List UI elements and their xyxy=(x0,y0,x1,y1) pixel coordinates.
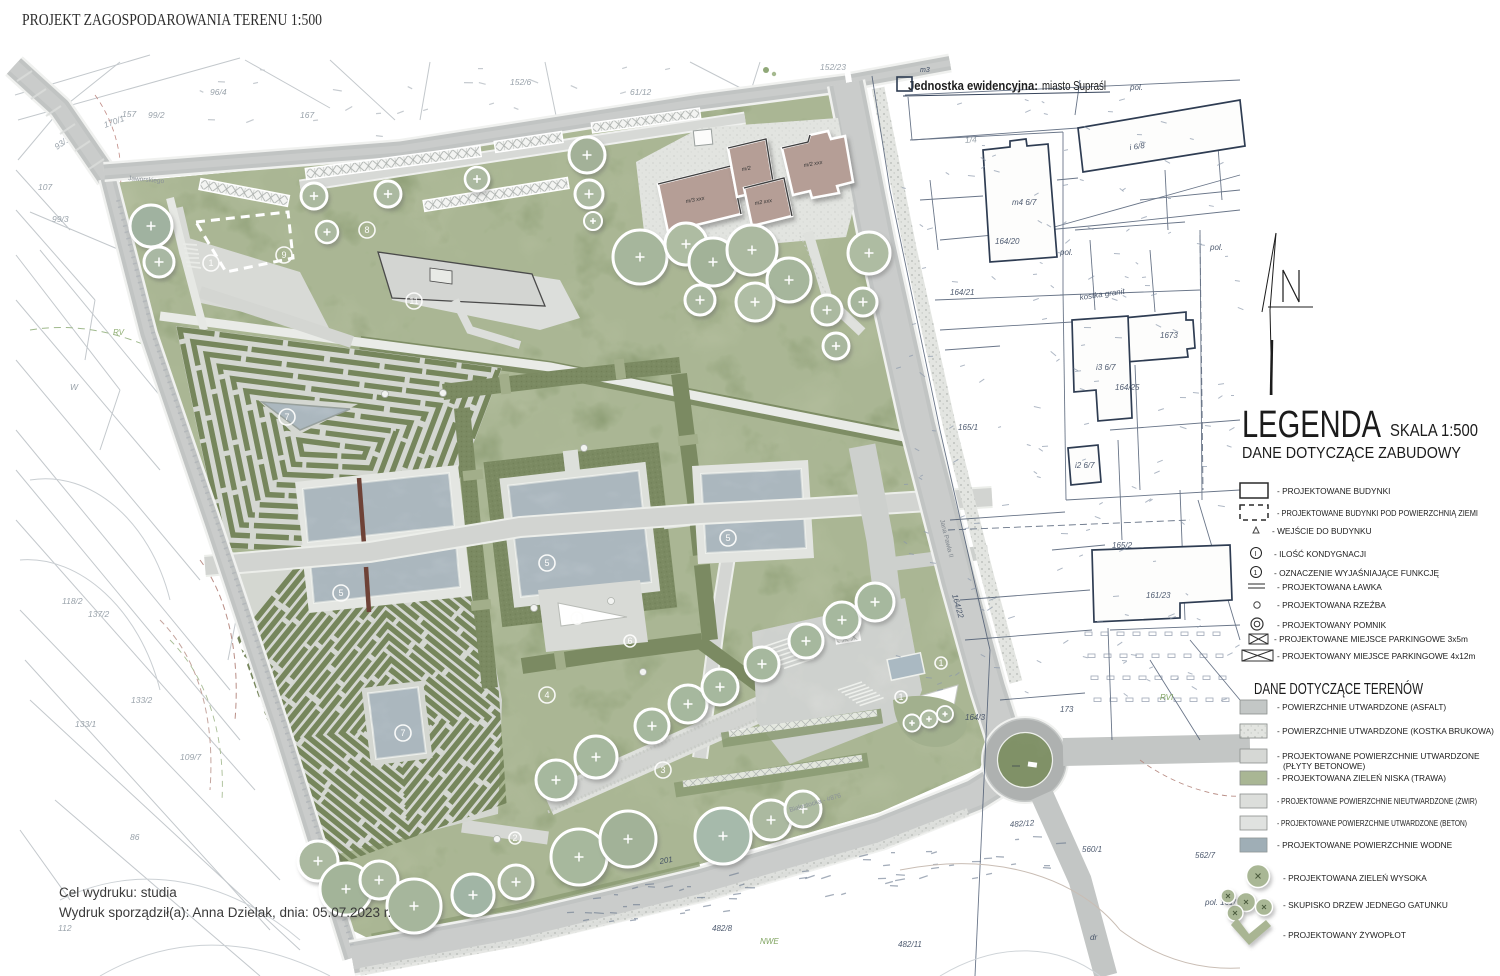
svg-text:86: 86 xyxy=(130,832,140,842)
svg-text:- PROJEKTOWANA ŁAWKA: - PROJEKTOWANA ŁAWKA xyxy=(1277,582,1382,592)
svg-text:- POWIERZCHNIE UTWARDZONE (KOS: - POWIERZCHNIE UTWARDZONE (KOSTKA BRUKOW… xyxy=(1277,726,1494,736)
svg-text:i3 6/7: i3 6/7 xyxy=(1096,363,1116,372)
svg-text:133/1: 133/1 xyxy=(75,719,97,729)
svg-text:- PROJEKTOWANE POWIERZCHNIE UT: - PROJEKTOWANE POWIERZCHNIE UTWARDZONE xyxy=(1277,751,1480,761)
svg-text:DANE DOTYCZĄCE ZABUDOWY: DANE DOTYCZĄCE ZABUDOWY xyxy=(1242,445,1461,462)
svg-text:RV: RV xyxy=(113,328,125,337)
svg-text:- OZNACZENIE WYJAŚNIAJĄCE FUNK: - OZNACZENIE WYJAŚNIAJĄCE FUNKCJĘ xyxy=(1274,567,1439,578)
svg-text:pol.: pol. xyxy=(1129,83,1143,92)
svg-text:- WEJŚCIE DO BUDYNKU: - WEJŚCIE DO BUDYNKU xyxy=(1272,525,1372,536)
svg-text:- PROJEKTOWANE BUDYNKI POD POW: - PROJEKTOWANE BUDYNKI POD POWIERZCHNIĄ … xyxy=(1277,508,1478,518)
svg-text:dr: dr xyxy=(1090,933,1097,942)
svg-text:6: 6 xyxy=(627,636,632,646)
svg-text:m4 6/7: m4 6/7 xyxy=(1012,198,1037,207)
svg-text:2: 2 xyxy=(512,833,517,843)
svg-text:- PROJEKTOWANE POWIERZCHNIE NI: - PROJEKTOWANE POWIERZCHNIE NIEUTWARDZON… xyxy=(1277,796,1477,806)
svg-text:7: 7 xyxy=(284,412,289,422)
svg-text:i2 6/7: i2 6/7 xyxy=(1075,461,1095,470)
svg-text:Cel wydruku: studia: Cel wydruku: studia xyxy=(59,885,177,900)
svg-text:- ILOŚĆ KONDYGNACJI: - ILOŚĆ KONDYGNACJI xyxy=(1274,548,1366,559)
svg-text:161/23: 161/23 xyxy=(1146,591,1171,600)
svg-text:NWE: NWE xyxy=(760,937,779,946)
svg-text:m3: m3 xyxy=(920,67,930,74)
svg-text:RVI: RVI xyxy=(1160,693,1174,702)
svg-text:miasto Supraśl: miasto Supraśl xyxy=(1042,79,1106,93)
svg-text:165/2: 165/2 xyxy=(1112,541,1133,550)
svg-text:482/8: 482/8 xyxy=(712,924,733,933)
svg-text:5: 5 xyxy=(725,533,730,543)
svg-text:133/2: 133/2 xyxy=(131,695,153,705)
svg-text:- PROJEKTOWANE POWIERZCHNIE WO: - PROJEKTOWANE POWIERZCHNIE WODNE xyxy=(1277,840,1453,850)
svg-text:1: 1 xyxy=(208,258,213,268)
svg-text:1: 1 xyxy=(898,692,903,702)
svg-text:96/4: 96/4 xyxy=(210,87,227,97)
svg-text:8: 8 xyxy=(364,225,369,235)
svg-text:1: 1 xyxy=(938,658,943,668)
svg-text:- PROJEKTOWANE MIEJSCE PARKING: - PROJEKTOWANE MIEJSCE PARKINGOWE 3x5m xyxy=(1274,634,1468,644)
svg-text:- PROJEKTOWANY MIEJSCE PARKING: - PROJEKTOWANY MIEJSCE PARKINGOWE 4x12m xyxy=(1277,651,1475,661)
svg-text:- PROJEKTOWANY ŻYWOPŁOT: - PROJEKTOWANY ŻYWOPŁOT xyxy=(1283,930,1406,940)
svg-text:11: 11 xyxy=(409,296,418,306)
svg-text:1: 1 xyxy=(574,613,579,623)
svg-text:152/6: 152/6 xyxy=(510,77,532,87)
svg-text:Jednostka ewidencyjna:: Jednostka ewidencyjna: xyxy=(908,79,1038,93)
svg-text:(PŁYTY BETONOWE): (PŁYTY BETONOWE) xyxy=(1283,761,1365,771)
svg-text:107: 107 xyxy=(38,182,52,192)
svg-text:- PROJEKTOWANE POWIERZCHNIE UT: - PROJEKTOWANE POWIERZCHNIE UTWARDZONE (… xyxy=(1277,818,1467,828)
svg-text:3: 3 xyxy=(660,765,665,775)
svg-text:112: 112 xyxy=(58,923,72,933)
svg-text:61/12: 61/12 xyxy=(630,87,652,97)
svg-text:167: 167 xyxy=(300,110,314,120)
svg-text:- PROJEKTOWANE BUDYNKI: - PROJEKTOWANE BUDYNKI xyxy=(1277,486,1390,496)
svg-text:- PROJEKTOWANA ZIELEŃ WYSOKA: - PROJEKTOWANA ZIELEŃ WYSOKA xyxy=(1283,873,1427,883)
svg-text:560/1: 560/1 xyxy=(1082,845,1102,854)
svg-text:pol.: pol. xyxy=(1209,243,1223,252)
svg-text:I: I xyxy=(1255,551,1257,558)
svg-text:- PROJEKTOWANY POMNIK: - PROJEKTOWANY POMNIK xyxy=(1277,620,1387,630)
svg-text:- PROJEKTOWANA ZIELEŃ NISKA (T: - PROJEKTOWANA ZIELEŃ NISKA (TRAWA) xyxy=(1277,773,1446,783)
svg-text:99/2: 99/2 xyxy=(148,110,165,120)
svg-text:173: 173 xyxy=(1060,705,1074,714)
svg-text:4: 4 xyxy=(544,690,549,700)
svg-text:PROJEKT ZAGOSPODAROWANIA TEREN: PROJEKT ZAGOSPODAROWANIA TERENU 1:500 xyxy=(22,10,322,29)
svg-text:- POWIERZCHNIE UTWARDZONE (ASF: - POWIERZCHNIE UTWARDZONE (ASFALT) xyxy=(1277,702,1446,712)
svg-text:5: 5 xyxy=(338,588,343,598)
svg-text:164/21: 164/21 xyxy=(950,288,974,297)
svg-text:109/7: 109/7 xyxy=(180,752,202,762)
svg-text:Wydruk sporządził(a): Anna Dzi: Wydruk sporządził(a): Anna Dzielak, dnia… xyxy=(59,905,391,920)
svg-text:7: 7 xyxy=(400,728,405,738)
svg-text:165/1: 165/1 xyxy=(958,423,978,432)
svg-text:9: 9 xyxy=(281,250,286,260)
svg-text:137/2: 137/2 xyxy=(88,609,110,619)
svg-text:99/3: 99/3 xyxy=(52,214,69,224)
svg-text:- SKUPISKO DRZEW JEDNEGO GATUN: - SKUPISKO DRZEW JEDNEGO GATUNKU xyxy=(1283,900,1448,910)
svg-text:SKALA 1:500: SKALA 1:500 xyxy=(1390,420,1478,440)
svg-text:562/7: 562/7 xyxy=(1195,851,1216,860)
svg-text:DANE DOTYCZĄCE TERENÓW: DANE DOTYCZĄCE TERENÓW xyxy=(1254,681,1423,698)
svg-text:482/11: 482/11 xyxy=(898,940,922,949)
svg-text:152/23: 152/23 xyxy=(820,62,846,72)
svg-text:1673: 1673 xyxy=(1160,331,1178,340)
svg-text:164/25: 164/25 xyxy=(1115,383,1140,392)
svg-text:118/2: 118/2 xyxy=(62,596,83,606)
svg-text:482/12: 482/12 xyxy=(1010,818,1036,829)
svg-text:pol.: pol. xyxy=(1059,248,1073,257)
svg-text:LEGENDA: LEGENDA xyxy=(1242,404,1381,446)
svg-text:164/3: 164/3 xyxy=(965,713,986,722)
svg-text:5: 5 xyxy=(544,558,549,568)
svg-text:164/20: 164/20 xyxy=(995,237,1020,246)
svg-text:157: 157 xyxy=(122,109,136,119)
svg-text:1: 1 xyxy=(1254,570,1258,577)
svg-text:W: W xyxy=(70,382,79,392)
svg-text:- PROJEKTOWANA RZEŹBA: - PROJEKTOWANA RZEŹBA xyxy=(1277,600,1386,610)
